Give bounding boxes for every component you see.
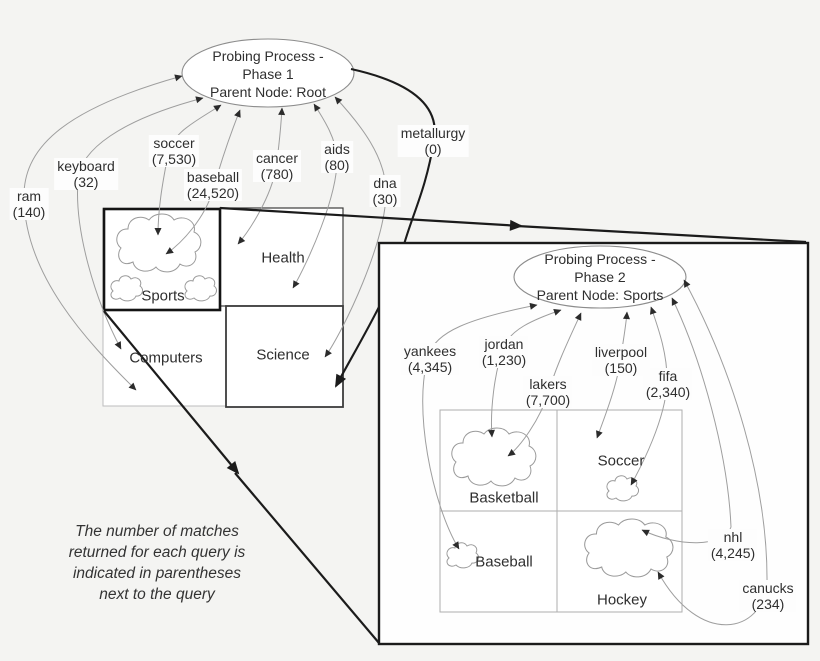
query-count: (780) bbox=[261, 166, 294, 182]
category-label-baseball: Baseball bbox=[475, 554, 533, 571]
category-label-sports: Sports bbox=[141, 288, 184, 305]
query-name: liverpool bbox=[595, 344, 647, 360]
query-count: (140) bbox=[13, 204, 46, 220]
query-name: canucks bbox=[742, 580, 793, 596]
query-count: (24,520) bbox=[187, 185, 239, 201]
phase1-ellipse-line1: Probing Process - bbox=[210, 47, 326, 65]
query-label-ram: ram (140) bbox=[10, 188, 49, 220]
phase1-ellipse-title: Probing Process - Phase 1 Parent Node: R… bbox=[210, 47, 326, 101]
category-label-science: Science bbox=[256, 347, 309, 364]
query-label-canucks: canucks (234) bbox=[739, 580, 796, 612]
query-count: (234) bbox=[752, 596, 785, 612]
query-count: (4,245) bbox=[711, 545, 755, 561]
query-name: soccer bbox=[153, 135, 194, 151]
query-label-soccer: soccer (7,530) bbox=[149, 135, 199, 167]
query-name: lakers bbox=[529, 376, 566, 392]
query-count: (4,345) bbox=[408, 359, 452, 375]
query-count: (80) bbox=[325, 157, 350, 173]
query-count: (150) bbox=[605, 360, 638, 376]
query-label-lakers: lakers (7,700) bbox=[523, 376, 573, 408]
cloud-icon-basketball bbox=[452, 428, 536, 486]
cloud-icon-hockey bbox=[585, 519, 673, 577]
query-label-fifa: fifa (2,340) bbox=[643, 368, 693, 400]
query-count: (2,340) bbox=[646, 384, 690, 400]
query-label-yankees: yankees (4,345) bbox=[401, 343, 459, 375]
zoom-line-top bbox=[517, 226, 806, 242]
query-count: (1,230) bbox=[482, 352, 526, 368]
category-label-soccer: Soccer bbox=[598, 453, 645, 470]
query-label-aids: aids (80) bbox=[321, 141, 353, 173]
query-count: (30) bbox=[373, 191, 398, 207]
category-label-computers: Computers bbox=[129, 350, 202, 367]
query-label-keyboard: keyboard (32) bbox=[54, 158, 118, 190]
query-name: ram bbox=[17, 188, 41, 204]
category-label-basketball: Basketball bbox=[469, 490, 538, 507]
query-label-baseball: baseball (24,520) bbox=[184, 169, 242, 201]
query-label-cancer: cancer (780) bbox=[253, 150, 301, 182]
query-label-dna: dna (30) bbox=[370, 175, 401, 207]
query-label-nhl: nhl (4,245) bbox=[708, 529, 758, 561]
query-name: keyboard bbox=[57, 158, 115, 174]
query-label-jordan: jordan (1,230) bbox=[479, 336, 529, 368]
query-name: jordan bbox=[485, 336, 524, 352]
phase1-ellipse-line3: Parent Node: Root bbox=[210, 83, 326, 101]
query-name: nhl bbox=[724, 529, 743, 545]
query-count: (0) bbox=[424, 141, 441, 157]
query-count: (32) bbox=[74, 174, 99, 190]
query-name: baseball bbox=[187, 169, 239, 185]
query-name: yankees bbox=[404, 343, 456, 359]
probing-process-figure: Probing Process - Phase 1 Parent Node: R… bbox=[0, 0, 820, 661]
query-count: (7,530) bbox=[152, 151, 196, 167]
phase2-ellipse-line3: Parent Node: Sports bbox=[537, 286, 664, 304]
query-label-liverpool: liverpool (150) bbox=[592, 344, 650, 376]
query-name: dna bbox=[373, 175, 396, 191]
query-name: fifa bbox=[659, 368, 678, 384]
query-count: (7,700) bbox=[526, 392, 570, 408]
category-label-health: Health bbox=[261, 250, 304, 267]
phase1-ellipse-line2: Phase 1 bbox=[210, 65, 326, 83]
query-name: aids bbox=[324, 141, 350, 157]
figure-note: The number of matches returned for each … bbox=[57, 521, 257, 605]
phase2-ellipse-line2: Phase 2 bbox=[537, 268, 664, 286]
query-name: cancer bbox=[256, 150, 298, 166]
query-label-metallurgy: metallurgy (0) bbox=[398, 125, 469, 157]
category-label-hockey: Hockey bbox=[597, 592, 647, 609]
query-name: metallurgy bbox=[401, 125, 466, 141]
phase2-ellipse-title: Probing Process - Phase 2 Parent Node: S… bbox=[537, 250, 664, 304]
phase2-ellipse-line1: Probing Process - bbox=[537, 250, 664, 268]
